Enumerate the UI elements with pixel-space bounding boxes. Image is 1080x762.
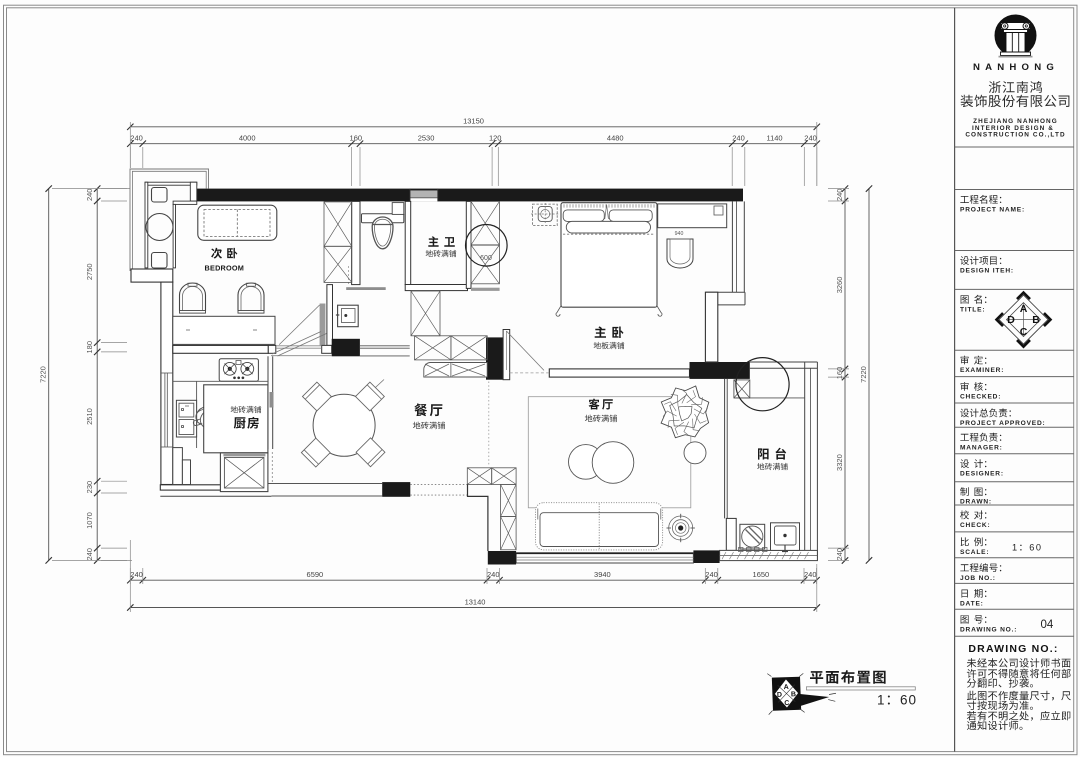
svg-text:4480: 4480 (607, 134, 624, 143)
svg-text:7220: 7220 (859, 366, 868, 383)
svg-text:B: B (791, 691, 796, 698)
svg-text:3320: 3320 (835, 454, 844, 471)
svg-text:240: 240 (85, 189, 94, 202)
svg-text:13140: 13140 (465, 598, 486, 607)
svg-text:DRAWN:: DRAWN: (960, 499, 992, 506)
svg-text:7220: 7220 (39, 366, 48, 383)
svg-text:3940: 3940 (594, 570, 611, 579)
svg-text:DRAWING NO.:: DRAWING NO.: (968, 643, 1058, 655)
svg-text:A: A (784, 684, 789, 691)
svg-text:DESIGNER:: DESIGNER: (960, 471, 1004, 478)
svg-text:DESIGN ITEH:: DESIGN ITEH: (960, 268, 1014, 275)
svg-text:ZHEJIANG NANHONG: ZHEJIANG NANHONG (973, 118, 1058, 125)
svg-text:1：60: 1：60 (877, 693, 917, 708)
svg-text:1140: 1140 (766, 134, 782, 143)
svg-text:DRAWING NO.:: DRAWING NO.: (960, 626, 1017, 633)
svg-text:240: 240 (804, 134, 817, 143)
svg-text:C: C (1020, 326, 1028, 338)
svg-text:240: 240 (732, 134, 745, 143)
svg-text:240: 240 (804, 570, 817, 579)
svg-text:BEDROOM: BEDROOM (205, 263, 245, 272)
svg-text:1650: 1650 (753, 570, 770, 579)
svg-text:3260: 3260 (835, 277, 844, 294)
svg-text:4000: 4000 (239, 134, 256, 143)
svg-text:2530: 2530 (418, 134, 435, 143)
svg-text:240: 240 (835, 548, 844, 561)
svg-text:CONSTRUCTION CO.,LTD: CONSTRUCTION CO.,LTD (965, 132, 1065, 139)
svg-text:NANHONG: NANHONG (973, 62, 1059, 73)
svg-text:600: 600 (480, 255, 492, 262)
svg-text:TITLE:: TITLE: (960, 306, 985, 313)
svg-text:240: 240 (85, 548, 94, 561)
svg-text:MANAGER:: MANAGER: (960, 444, 1003, 451)
svg-text:PROJECT APPROVED:: PROJECT APPROVED: (960, 420, 1046, 427)
svg-text:CHECKED:: CHECKED: (960, 394, 1001, 401)
svg-text:120: 120 (489, 134, 502, 143)
svg-text:240: 240 (130, 134, 143, 143)
svg-text:6590: 6590 (307, 570, 324, 579)
svg-text:240: 240 (487, 570, 500, 579)
svg-text:CHECK:: CHECK: (960, 522, 990, 529)
svg-text:04: 04 (1041, 619, 1054, 631)
svg-text:1：60: 1：60 (1012, 543, 1043, 553)
svg-text:940: 940 (675, 231, 684, 237)
svg-text:SCALE:: SCALE: (960, 549, 989, 556)
svg-text:EXAMINER:: EXAMINER: (960, 367, 1004, 374)
svg-text:180: 180 (85, 341, 94, 354)
svg-text:160: 160 (835, 367, 844, 380)
svg-text:C: C (784, 700, 789, 707)
svg-text:2750: 2750 (85, 263, 94, 280)
svg-text:13150: 13150 (463, 117, 484, 126)
svg-text:2510: 2510 (85, 408, 94, 425)
svg-text:JOB NO.:: JOB NO.: (960, 575, 996, 582)
svg-text:D: D (777, 692, 782, 699)
svg-text:A: A (1020, 303, 1028, 315)
svg-text:D: D (1007, 314, 1015, 326)
svg-text:B: B (1032, 314, 1040, 326)
svg-text:PROJECT NAME:: PROJECT NAME: (960, 207, 1025, 214)
svg-text:240: 240 (705, 570, 718, 579)
svg-text:160: 160 (350, 134, 363, 143)
svg-text:230: 230 (85, 481, 94, 494)
svg-text:240: 240 (835, 189, 844, 202)
svg-text:DATE:: DATE: (960, 600, 984, 607)
svg-text:240: 240 (130, 570, 143, 579)
svg-text:1070: 1070 (85, 512, 94, 529)
